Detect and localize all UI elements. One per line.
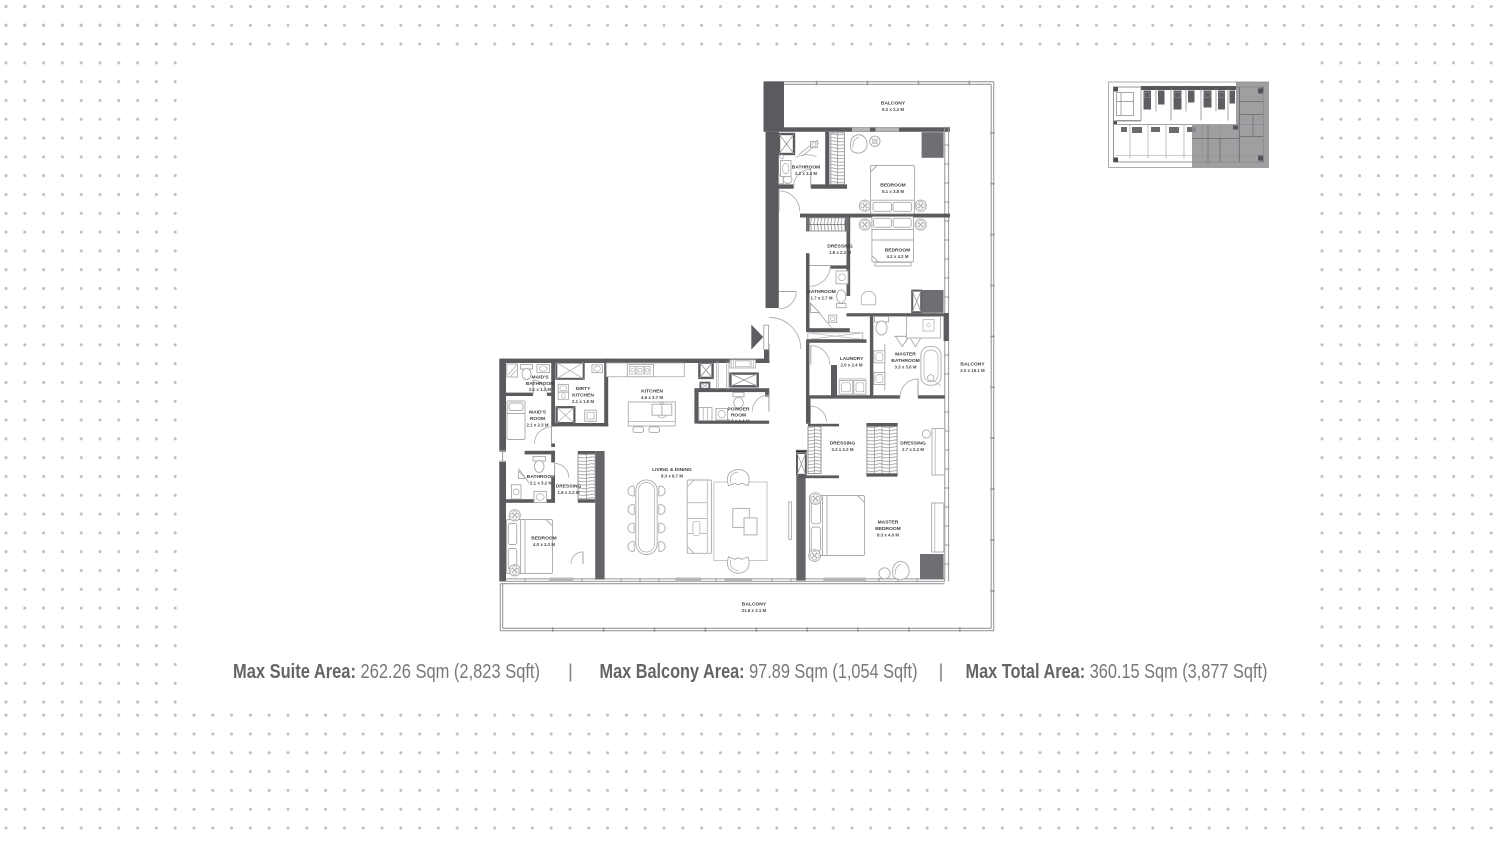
svg-text:|: | bbox=[939, 662, 944, 683]
svg-text:BALCONY: BALCONY bbox=[881, 101, 906, 107]
svg-text:Max Total Area: 360.15 Sqm (3,: Max Total Area: 360.15 Sqm (3,877 Sqft) bbox=[966, 660, 1268, 683]
svg-text:1.8 x 2.2 M: 1.8 x 2.2 M bbox=[829, 250, 851, 255]
svg-text:1.7 x 2.7 M: 1.7 x 2.7 M bbox=[811, 296, 833, 301]
svg-text:LAUNDRY: LAUNDRY bbox=[840, 356, 864, 362]
svg-text:BALCONY: BALCONY bbox=[960, 362, 985, 368]
svg-text:2.1 x 1.2 M: 2.1 x 1.2 M bbox=[529, 387, 551, 392]
svg-text:9.2 x 2.2 M: 9.2 x 2.2 M bbox=[882, 107, 904, 112]
svg-text:MASTER: MASTER bbox=[895, 352, 916, 358]
svg-text:DRESSING: DRESSING bbox=[900, 441, 926, 447]
svg-text:BATHROOM: BATHROOM bbox=[526, 381, 554, 387]
svg-text:5.1 x 3.8 M: 5.1 x 3.8 M bbox=[882, 189, 904, 194]
svg-text:KITCHEN: KITCHEN bbox=[641, 389, 663, 395]
svg-text:3.3 x 3.6 M: 3.3 x 3.6 M bbox=[895, 365, 917, 370]
svg-text:DIRTY: DIRTY bbox=[576, 386, 591, 392]
svg-text:4.0 x 3.3 M: 4.0 x 3.3 M bbox=[533, 542, 555, 547]
svg-text:|: | bbox=[568, 662, 573, 683]
svg-text:4.6 x 3.7 M: 4.6 x 3.7 M bbox=[641, 395, 663, 400]
svg-text:21.8 x 2.1 M: 21.8 x 2.1 M bbox=[742, 608, 767, 613]
svg-text:Max Balcony Area: 97.89 Sqm (1: Max Balcony Area: 97.89 Sqm (1,054 Sqft) bbox=[600, 660, 918, 683]
svg-text:4.2 x 4.2 M: 4.2 x 4.2 M bbox=[887, 254, 909, 259]
svg-text:1.8 x 2.2 M: 1.8 x 2.2 M bbox=[558, 490, 580, 495]
svg-text:KITCHEN: KITCHEN bbox=[572, 393, 594, 399]
svg-text:MASTER: MASTER bbox=[878, 520, 899, 526]
svg-text:8.3 x 6.7 M: 8.3 x 6.7 M bbox=[661, 474, 683, 479]
svg-text:3.2 x 2.2 M: 3.2 x 2.2 M bbox=[832, 447, 854, 452]
svg-text:2.2 x 3.4 M: 2.2 x 3.4 M bbox=[795, 171, 817, 176]
svg-text:MAID'S: MAID'S bbox=[529, 410, 547, 416]
svg-text:BALCONY: BALCONY bbox=[742, 602, 767, 608]
svg-text:BATHROOM: BATHROOM bbox=[792, 165, 820, 171]
svg-text:BATHROOM: BATHROOM bbox=[527, 474, 555, 480]
svg-text:2.7 x 2.2 M: 2.7 x 2.2 M bbox=[902, 447, 924, 452]
svg-text:2.1 x 2.3 M: 2.1 x 2.3 M bbox=[527, 423, 549, 428]
svg-text:BEDROOM: BEDROOM bbox=[880, 183, 906, 189]
svg-text:2.1 x 3.2 M: 2.1 x 3.2 M bbox=[530, 481, 552, 486]
svg-text:MAID'S: MAID'S bbox=[532, 375, 550, 381]
svg-text:ROOM: ROOM bbox=[530, 416, 545, 422]
svg-text:DRESSING: DRESSING bbox=[827, 244, 853, 250]
svg-text:BEDROOM: BEDROOM bbox=[531, 536, 557, 542]
svg-text:BATHROOM: BATHROOM bbox=[807, 289, 835, 295]
svg-text:8.3 x 4.0 M: 8.3 x 4.0 M bbox=[877, 533, 899, 538]
svg-text:Max Suite Area: 262.26 Sqm (2,: Max Suite Area: 262.26 Sqm (2,823 Sqft) bbox=[233, 660, 540, 683]
svg-text:DRESSING: DRESSING bbox=[830, 441, 856, 447]
svg-text:BATHROOM: BATHROOM bbox=[891, 358, 919, 364]
svg-text:2.0 x 16.1 M: 2.0 x 16.1 M bbox=[960, 368, 985, 373]
svg-text:2.0 x 2.4 M: 2.0 x 2.4 M bbox=[841, 363, 863, 368]
svg-text:BEDROOM: BEDROOM bbox=[885, 248, 911, 254]
svg-text:POWDER: POWDER bbox=[727, 407, 749, 413]
svg-text:DRESSING: DRESSING bbox=[556, 484, 582, 490]
svg-text:BEDROOM: BEDROOM bbox=[875, 526, 901, 532]
svg-text:LIVING & DINING: LIVING & DINING bbox=[652, 467, 692, 473]
svg-text:2.3 x 1.4 M: 2.3 x 1.4 M bbox=[728, 419, 750, 424]
svg-text:2.1 x 1.8 M: 2.1 x 1.8 M bbox=[572, 399, 594, 404]
